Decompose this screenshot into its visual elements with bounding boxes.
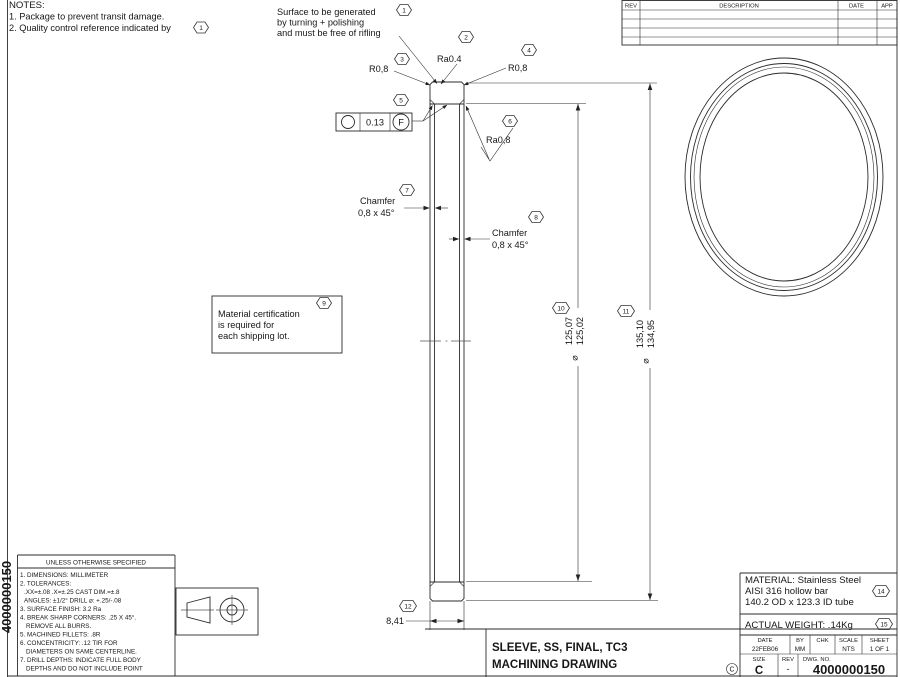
by-label: BY bbox=[796, 638, 804, 644]
section-view bbox=[420, 82, 471, 601]
chamfer-left-line2: 0,8 x 45° bbox=[358, 208, 395, 218]
surface-note-callout: Surface to be generated by turning + pol… bbox=[277, 7, 437, 84]
balloon-5: 5 bbox=[394, 95, 409, 106]
dim-outer-lower: 134,95 bbox=[646, 320, 656, 348]
r08-right-callout: R0,8 bbox=[464, 63, 527, 85]
balloon-11-number: 11 bbox=[623, 308, 630, 315]
note-line-2: 2. Quality control reference indicated b… bbox=[9, 23, 171, 33]
dim-inner-upper: 125,07 bbox=[564, 317, 574, 345]
copyright-letter: C bbox=[729, 667, 734, 674]
material-line1: MATERIAL: Stainless Steel bbox=[745, 575, 861, 586]
balloon-6-number: 6 bbox=[508, 118, 512, 125]
title-block-table: DATE BY CHK SCALE SHEET 22FEB06 MM NTS 1… bbox=[740, 635, 897, 677]
sheet-label: SHEET bbox=[870, 638, 890, 644]
balloon-1-ref: 1 bbox=[194, 22, 209, 33]
front-view-ring bbox=[685, 58, 883, 296]
rev-label: REV bbox=[782, 657, 794, 663]
r08-left-callout: R0,8 bbox=[369, 64, 430, 85]
chk-label: CHK bbox=[816, 638, 828, 644]
material-cert-line1: Material certification bbox=[218, 309, 300, 319]
balloon-12: 12 bbox=[400, 601, 417, 612]
description-col-header: DESCRIPTION bbox=[719, 4, 759, 10]
tolerance-line-10: DIAMETERS ON SAME CENTERLINE. bbox=[26, 649, 137, 656]
tolerance-line-7: REMOVE ALL BURRS. bbox=[26, 623, 91, 630]
dim-width-value: 8,41 bbox=[386, 616, 404, 626]
dim-width: 8,41 bbox=[386, 601, 464, 630]
balloon-15-number: 15 bbox=[880, 621, 888, 628]
tolerance-line-12: DEPTHS AND DO NOT INCLUDE POINT bbox=[26, 666, 143, 673]
balloon-1-number: 1 bbox=[402, 7, 406, 14]
balloon-14-number: 14 bbox=[877, 588, 885, 595]
balloon-3: 3 bbox=[395, 54, 410, 65]
tolerance-line-5: 3. SURFACE FINISH: 3.2 Ra bbox=[20, 606, 102, 613]
material-block: MATERIAL: Stainless Steel AISI 316 hollo… bbox=[740, 573, 897, 635]
date-col-header: DATE bbox=[849, 4, 864, 10]
drawing-type: MACHINING DRAWING bbox=[492, 659, 617, 671]
part-title: SLEEVE, SS, FINAL, TC3 bbox=[492, 642, 627, 654]
size-label: SIZE bbox=[753, 657, 766, 663]
ra04-callout: Ra0.4 bbox=[437, 54, 462, 84]
by-value: MM bbox=[795, 646, 806, 653]
material-line2: AISI 316 hollow bar bbox=[745, 586, 829, 597]
date-value: 22FEB06 bbox=[752, 646, 779, 653]
surface-note-line3: and must be free of rifling bbox=[277, 28, 381, 38]
circularity-symbol-icon bbox=[342, 116, 355, 129]
balloon-1: 1 bbox=[397, 5, 412, 16]
drawing-sheet: NOTES: 1. Package to prevent transit dam… bbox=[0, 0, 900, 677]
scale-value: NTS bbox=[842, 646, 855, 653]
section-bottom-wall bbox=[430, 582, 464, 601]
tolerance-line-1: 1. DIMENSIONS: MILLIMETER bbox=[20, 572, 109, 579]
dim-outer-diameter-symbol: ⌀ bbox=[641, 358, 651, 364]
tolerance-line-4: ANGLES: ±1/2° DRILL ⌀: +.25/-.08 bbox=[24, 597, 122, 605]
tolerance-line-2: 2. TOLERANCES: bbox=[20, 581, 71, 588]
size-value: C bbox=[755, 665, 763, 677]
tolerance-line-6: 4. BREAK SHARP CORNERS: .25 X 45°. bbox=[20, 614, 136, 622]
dim-inner-diameter-symbol: ⌀ bbox=[570, 355, 580, 361]
actual-weight: ACTUAL WEIGHT: .14Kg bbox=[745, 620, 853, 631]
chamfer-right-line2: 0,8 x 45° bbox=[492, 240, 529, 250]
balloon-4-number: 4 bbox=[527, 47, 531, 54]
tolerance-line-9: 6. CONCENTRICITY: .12 TIR FOR bbox=[20, 640, 118, 647]
note-line-1: 1. Package to prevent transit damage. bbox=[9, 12, 164, 22]
balloon-10-number: 10 bbox=[557, 305, 565, 312]
notes-title: NOTES: bbox=[9, 0, 45, 11]
balloon-8-number: 8 bbox=[534, 214, 538, 221]
balloon-11: 11 bbox=[618, 306, 635, 317]
date-label: DATE bbox=[757, 638, 772, 644]
chamfer-left-line1: Chamfer bbox=[360, 196, 395, 206]
balloon-3-number: 3 bbox=[400, 56, 404, 63]
dim-outer-upper: 135,10 bbox=[635, 320, 645, 348]
tolerance-line-8: 5. MACHINED FILLETS: .8R bbox=[20, 632, 101, 639]
doc-number-vertical: 4000000150 bbox=[0, 561, 14, 633]
balloon-12-number: 12 bbox=[404, 603, 412, 610]
balloon-2-number: 2 bbox=[464, 34, 468, 41]
balloon-14: 14 bbox=[873, 586, 890, 597]
balloon-8: 8 bbox=[529, 212, 544, 223]
fcf-datum: F bbox=[398, 118, 404, 128]
balloon-2: 2 bbox=[459, 32, 474, 43]
section-top-wall bbox=[430, 82, 464, 104]
balloon-5-number: 5 bbox=[399, 97, 403, 104]
balloon-9-number: 9 bbox=[322, 300, 326, 307]
balloon-7-number: 7 bbox=[405, 187, 409, 194]
margin-doc-number: 4000000150 bbox=[0, 561, 14, 633]
balloon-9: 9 bbox=[317, 298, 332, 309]
fcf-tolerance: 0.13 bbox=[366, 118, 384, 128]
rev-col-header: REV bbox=[625, 4, 637, 10]
balloon-15: 15 bbox=[876, 619, 893, 630]
material-cert-line2: is required for bbox=[218, 320, 274, 330]
dwg-no-value: 4000000150 bbox=[813, 662, 885, 677]
tolerance-line-11: 7. DRILL DEPTHS: INDICATE FULL BODY bbox=[20, 657, 142, 664]
balloon-4: 4 bbox=[522, 45, 537, 56]
scale-label: SCALE bbox=[839, 638, 858, 644]
material-cert-line3: each shipping lot. bbox=[218, 331, 290, 341]
app-col-header: APP bbox=[881, 4, 893, 10]
surface-note-line1: Surface to be generated bbox=[277, 7, 376, 17]
r08-left-label: R0,8 bbox=[369, 64, 388, 74]
balloon-7: 7 bbox=[400, 185, 415, 196]
dim-inner-diameter: 125,07 125,02 ⌀ bbox=[466, 104, 592, 582]
dim-inner-lower: 125,02 bbox=[575, 317, 585, 345]
balloon-1-ref-number: 1 bbox=[199, 25, 203, 32]
sheet-value: 1 OF 1 bbox=[870, 646, 890, 653]
rev-value: - bbox=[786, 664, 789, 674]
chamfer-right-line1: Chamfer bbox=[492, 228, 527, 238]
material-line3: 140.2 OD x 123.3 ID tube bbox=[745, 597, 854, 608]
projection-symbol bbox=[176, 588, 258, 635]
tolerance-block: UNLESS OTHERWISE SPECIFIED 1. DIMENSIONS… bbox=[18, 555, 176, 676]
revision-table: REV DESCRIPTION DATE APP bbox=[622, 1, 897, 46]
balloon-6: 6 bbox=[503, 116, 518, 127]
tolerance-line-3: .XX=±.08 .X=±.25 CAST DIM.=±.8 bbox=[24, 589, 120, 596]
r08-right-label: R0,8 bbox=[508, 63, 527, 73]
ra08-callout: Ra0,8 bbox=[466, 106, 513, 161]
notes: NOTES: 1. Package to prevent transit dam… bbox=[9, 0, 171, 33]
ra04-label: Ra0.4 bbox=[437, 54, 462, 64]
surface-note-line2: by turning + polishing bbox=[277, 18, 364, 28]
balloon-10: 10 bbox=[553, 303, 570, 314]
chamfer-right-callout: Chamfer 0,8 x 45° bbox=[449, 228, 529, 250]
tolerance-title: UNLESS OTHERWISE SPECIFIED bbox=[46, 560, 146, 567]
